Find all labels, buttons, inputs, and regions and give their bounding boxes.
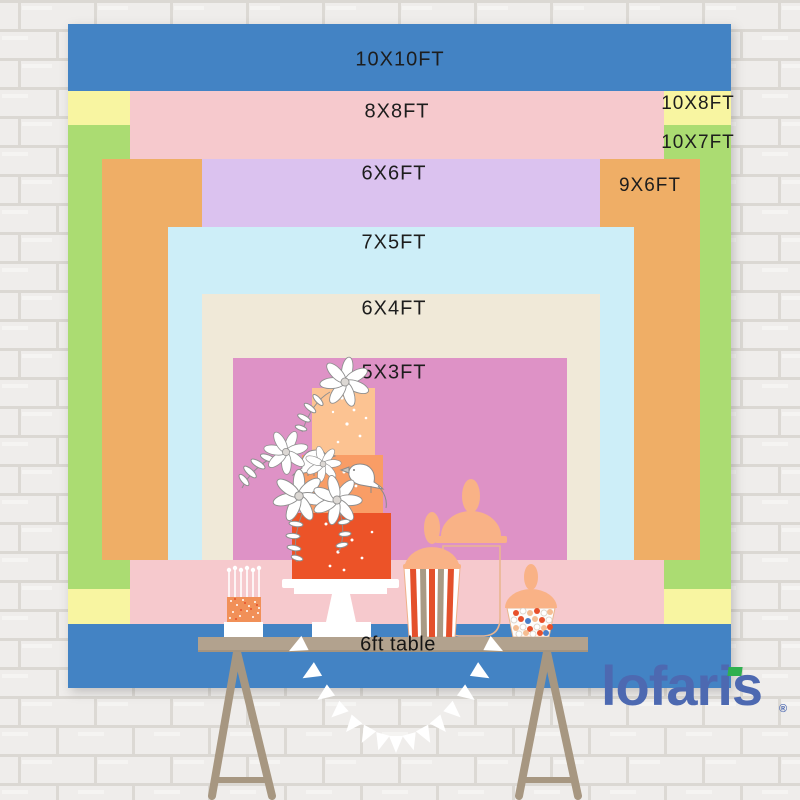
tiered-cake-icon bbox=[237, 353, 399, 637]
table-size-label: 6ft table bbox=[360, 634, 436, 657]
logo-green-accent-icon bbox=[727, 667, 742, 676]
trestle-table bbox=[198, 637, 588, 796]
registered-trademark-icon: ® bbox=[779, 703, 787, 715]
brand-logo-text: lofaris bbox=[601, 654, 762, 717]
mini-birthday-cake-icon bbox=[224, 566, 263, 637]
table-legs-icon bbox=[212, 652, 578, 796]
candy-jar-icon bbox=[505, 564, 557, 637]
backdrop-size-chart: 10X10FT 10X8FT 10X7FT 8X8FT 9X6FT 6X6FT … bbox=[0, 0, 800, 800]
brand-logo: lofaris ® bbox=[601, 657, 800, 727]
